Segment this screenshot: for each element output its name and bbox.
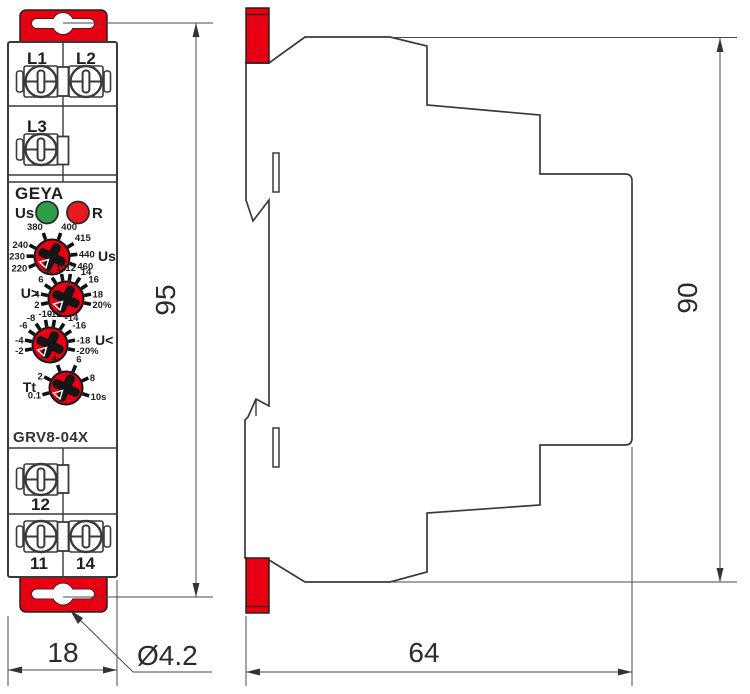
dial-scale-value: -8 [27, 313, 35, 324]
dial-us-label: Us [98, 248, 116, 264]
front-view: L1 L2 L3 GEYA Us R 220230240380400415440… [8, 10, 117, 612]
dial-scale-value: 230 [9, 252, 25, 263]
dial-scale-value: 415 [75, 233, 92, 244]
led-us-green [36, 202, 58, 224]
terminal-screw-l1[interactable] [25, 66, 57, 97]
dial-scale-value: 8 [90, 373, 95, 384]
dial-scale-value: 18 [93, 289, 104, 300]
terminal-label-11: 11 [30, 554, 48, 573]
led-us-label: Us [15, 205, 34, 222]
terminal-screw-11[interactable] [25, 521, 57, 552]
terminal-label-12: 12 [31, 495, 50, 514]
dial-scale-value: 8 [46, 267, 51, 278]
dial-scale-value: 240 [12, 240, 28, 251]
dim-front-width: 18 [47, 637, 78, 668]
dial-scale-value: 400 [61, 222, 77, 233]
dial-scale-value: 10s [91, 392, 107, 403]
dial-tick [26, 254, 33, 258]
dial-scale-value: 4 [52, 354, 58, 365]
side-view [245, 8, 632, 613]
dim-hole-diameter: Ø4.2 [137, 640, 198, 671]
dial-scale-value: 220 [11, 264, 27, 275]
side-top-clip [246, 8, 269, 63]
terminal-label-14: 14 [76, 554, 95, 573]
dial-scale-value: 440 [79, 250, 95, 261]
dial-tt-label: Tt [23, 379, 37, 395]
terminal-screw-14[interactable] [70, 521, 102, 552]
dial-scale-value: -18 [77, 335, 91, 346]
terminal-label-l1: L1 [27, 49, 47, 68]
dim-side-depth: 64 [408, 637, 439, 668]
model-number: GRV8-04X [13, 429, 88, 446]
dial-scale-value: 6 [38, 274, 43, 285]
dial-scale-value: 12 [65, 263, 76, 274]
dial-scale-value: -12 [48, 309, 62, 320]
dial-scale-value: -16 [72, 320, 86, 331]
din-slot-upper [273, 153, 279, 192]
dim-side-height: 90 [672, 282, 703, 313]
dial-scale-value: 380 [27, 222, 43, 233]
dial-scale-value: -4 [15, 335, 24, 346]
terminal-screw-12[interactable] [25, 464, 57, 495]
terminal-label-l2: L2 [76, 49, 96, 68]
dial-ult-label: U< [95, 332, 113, 348]
side-bottom-clip [246, 558, 269, 613]
terminal-screw-l2[interactable] [70, 66, 102, 97]
led-r-label: R [92, 205, 103, 222]
terminal-screw-l3[interactable] [25, 134, 57, 165]
brand-logo: GEYA [15, 184, 64, 203]
dial-scale-value: -2 [15, 346, 23, 357]
dial-scale-value: 6 [76, 355, 81, 366]
dial-scale-value: 2 [38, 372, 43, 383]
led-r-red [67, 202, 89, 224]
dim-front-height: 95 [150, 284, 181, 315]
dial-scale-value: 16 [88, 274, 99, 285]
din-slot-lower [273, 428, 279, 467]
dial-scale-value: 20% [92, 300, 112, 311]
dimension-hole: Ø4.2 [70, 610, 212, 672]
dial-ugt-label: U> [21, 285, 39, 301]
terminal-label-l3: L3 [27, 117, 47, 136]
dimension-drawing: L1 L2 L3 GEYA Us R 220230240380400415440… [0, 0, 750, 694]
side-profile [245, 37, 632, 582]
dial-tick [70, 253, 77, 257]
